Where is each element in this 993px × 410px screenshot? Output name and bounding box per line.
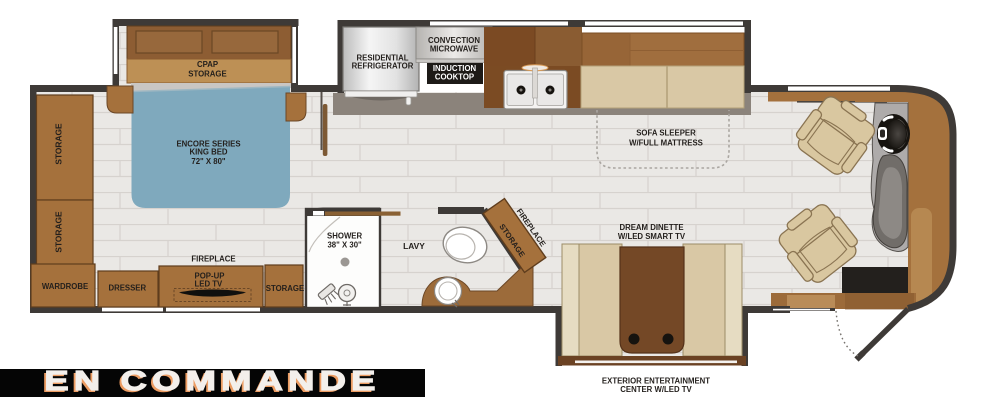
- svg-text:LED TV: LED TV: [195, 280, 224, 289]
- svg-text:72" X 80": 72" X 80": [191, 157, 226, 166]
- svg-text:STORAGE: STORAGE: [266, 284, 304, 293]
- svg-text:FIREPLACE: FIREPLACE: [191, 255, 235, 264]
- svg-text:MICROWAVE: MICROWAVE: [430, 44, 478, 53]
- svg-text:38" X 30": 38" X 30": [327, 241, 362, 250]
- svg-text:LAVY: LAVY: [403, 241, 425, 251]
- svg-text:SHOWER: SHOWER: [327, 232, 362, 241]
- svg-text:CPAP: CPAP: [197, 60, 218, 69]
- svg-text:CENTER W/LED TV: CENTER W/LED TV: [620, 385, 692, 394]
- svg-text:STORAGE: STORAGE: [188, 70, 226, 79]
- svg-text:COOKTOP: COOKTOP: [435, 73, 474, 82]
- svg-text:STORAGE: STORAGE: [54, 211, 64, 253]
- svg-text:WARDROBE: WARDROBE: [42, 282, 88, 291]
- svg-text:DREAM DINETTE: DREAM DINETTE: [619, 223, 683, 232]
- svg-text:REFRIGERATOR: REFRIGERATOR: [352, 62, 414, 71]
- svg-text:DRESSER: DRESSER: [108, 284, 146, 293]
- svg-text:STORAGE: STORAGE: [54, 123, 64, 165]
- svg-text:KING BED: KING BED: [189, 148, 227, 157]
- svg-text:SOFA SLEEPER: SOFA SLEEPER: [636, 128, 696, 137]
- svg-text:W/LED SMART TV: W/LED SMART TV: [618, 232, 686, 241]
- svg-text:W/FULL MATTRESS: W/FULL MATTRESS: [629, 138, 703, 147]
